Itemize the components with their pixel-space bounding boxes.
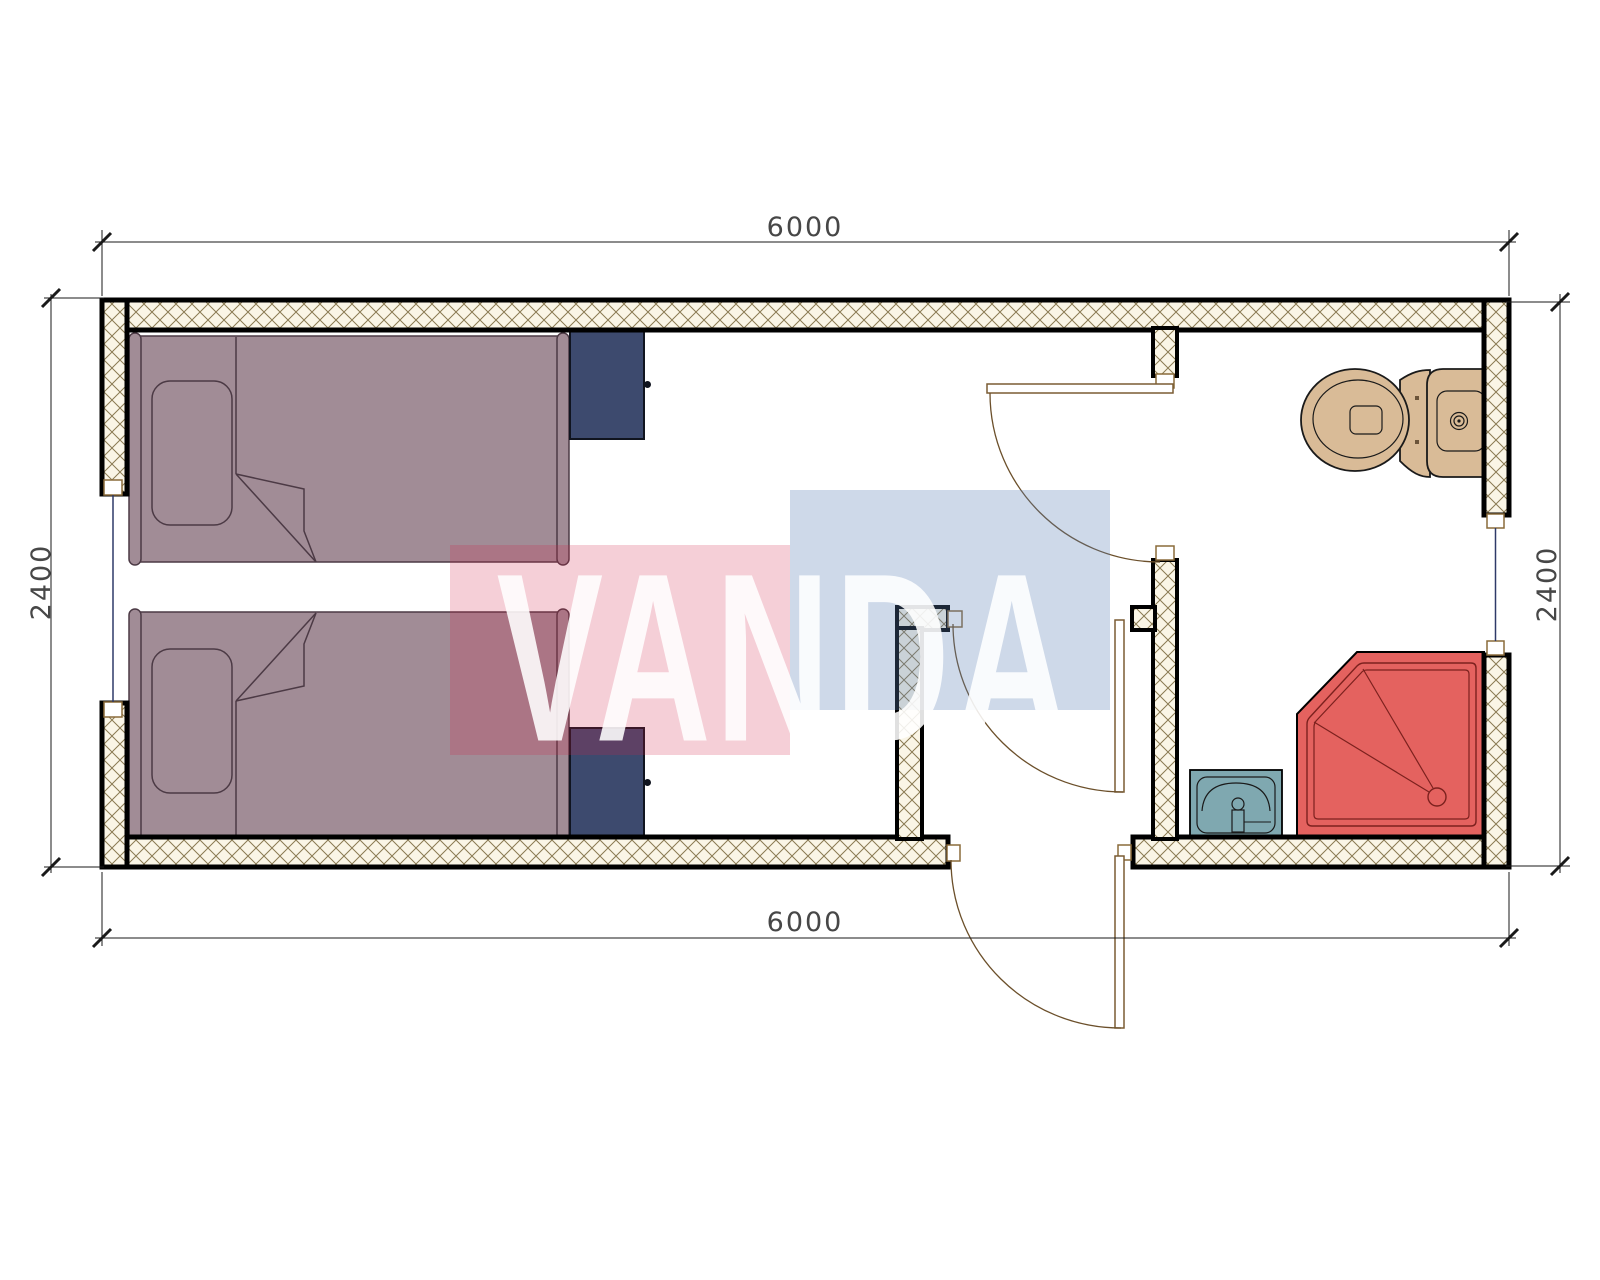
toilet-bolt-top	[1415, 396, 1419, 400]
door-entry-swing-arc	[951, 860, 1121, 1028]
nightstand-1-body	[570, 330, 644, 439]
sink	[1190, 770, 1282, 839]
nightstand-1	[570, 330, 651, 439]
bed-2-pillow	[152, 649, 232, 793]
watermark-brand-text: VANDA	[496, 524, 1073, 792]
dim-label-top: 6000	[767, 212, 844, 243]
nightstand-1-knob	[644, 381, 651, 388]
cap-entry-left	[947, 845, 960, 861]
watermark: VANDA	[450, 490, 1110, 792]
wall-bathroom-jamb	[1132, 607, 1155, 630]
cap-window-left-bottom	[104, 702, 122, 717]
door-entry-leaf	[1115, 856, 1124, 1028]
shower-tray	[1297, 652, 1484, 838]
bed-1-headboard	[129, 333, 141, 565]
bed-1-pillow	[152, 381, 232, 525]
dim-label-left: 2400	[26, 544, 57, 621]
wall-left-lower	[102, 703, 127, 867]
wall-bathroom-stub	[1153, 328, 1177, 376]
wall-right-lower	[1484, 655, 1509, 867]
wall-bathroom-main	[1153, 560, 1177, 839]
wall-bottom-right	[1133, 837, 1509, 867]
wall-top	[102, 300, 1509, 330]
dim-label-right: 2400	[1532, 546, 1563, 623]
floor-plan-drawing: 6000 6000 2400 2400 VANDA	[0, 0, 1600, 1280]
floor-plan-page: 6000 6000 2400 2400 VANDA	[0, 0, 1600, 1280]
wall-bottom-left	[102, 837, 948, 867]
toilet-tank	[1427, 369, 1486, 477]
door-corridor-leaf	[1115, 620, 1124, 792]
wall-left-upper	[102, 300, 127, 494]
cap-window-left-top	[104, 480, 122, 495]
cap-window-right-top	[1487, 514, 1504, 528]
toilet-bolt-bottom	[1415, 440, 1419, 444]
cap-window-right-bottom	[1487, 641, 1504, 655]
dim-label-bottom: 6000	[767, 907, 844, 938]
toilet-valve-dot	[1457, 419, 1460, 422]
cap-bathroom-main-top	[1156, 546, 1174, 560]
bed-2-headboard	[129, 609, 141, 841]
sink-body	[1190, 770, 1282, 839]
door-bathroom-leaf	[987, 384, 1173, 393]
toilet	[1301, 369, 1486, 477]
toilet-seat-detail	[1350, 406, 1382, 434]
shower-drain	[1428, 788, 1446, 806]
shower	[1297, 652, 1484, 838]
wall-right-upper	[1484, 300, 1509, 515]
